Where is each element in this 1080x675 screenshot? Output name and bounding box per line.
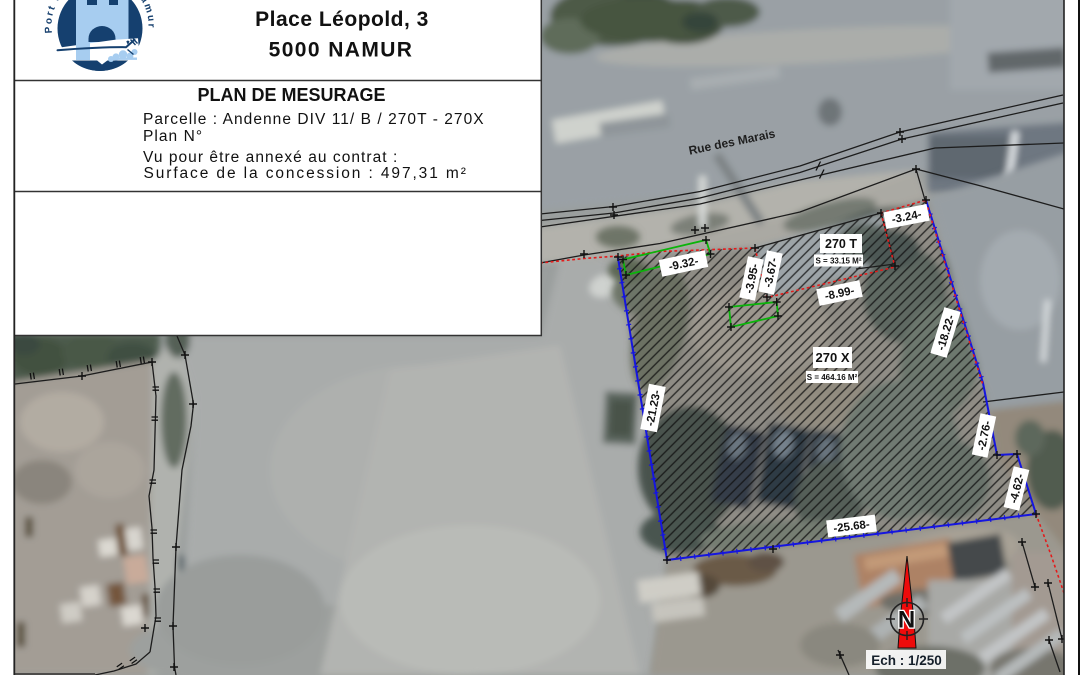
svg-text:Parcelle : Andenne DIV 11/ B /: Parcelle : Andenne DIV 11/ B / 270T - 27…: [143, 111, 485, 128]
svg-text:Surface de la concession : 497: Surface de la concession : 497,31 m²: [144, 165, 468, 182]
svg-text:N: N: [898, 607, 915, 634]
svg-text:5000 NAMUR: 5000 NAMUR: [269, 39, 414, 62]
svg-text:Vu pour être annexé au contrat: Vu pour être annexé au contrat :: [143, 149, 398, 166]
svg-text:Place Léopold, 3: Place Léopold, 3: [255, 8, 429, 31]
svg-text:Plan N°: Plan N°: [143, 128, 203, 145]
svg-text:PLAN DE MESURAGE: PLAN DE MESURAGE: [197, 85, 385, 105]
svg-text:Ech : 1/250: Ech : 1/250: [871, 653, 942, 668]
svg-text:270 X: 270 X: [816, 350, 850, 365]
svg-text:S = 33.15 M²: S = 33.15 M²: [815, 256, 861, 265]
svg-text:S = 464.16 M²: S = 464.16 M²: [807, 373, 858, 382]
svg-text:270 T: 270 T: [825, 237, 857, 251]
